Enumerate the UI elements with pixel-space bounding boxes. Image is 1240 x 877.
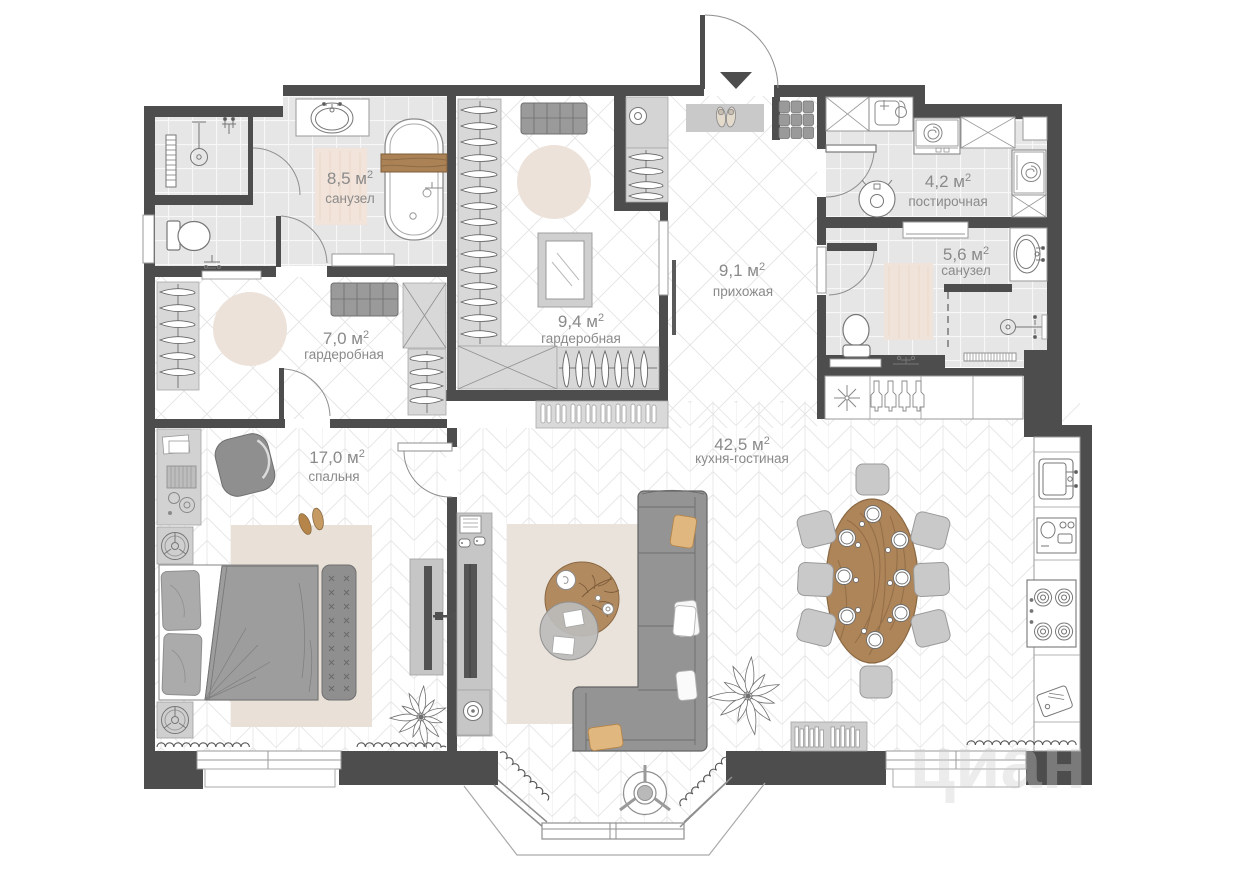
svg-text:санузел: санузел	[941, 263, 990, 278]
svg-text:5,6 м2: 5,6 м2	[943, 245, 989, 264]
svg-text:санузел: санузел	[325, 191, 374, 206]
svg-text:9,1 м2: 9,1 м2	[719, 261, 765, 280]
svg-text:8,5 м2: 8,5 м2	[327, 169, 373, 188]
svg-text:гардеробная: гардеробная	[304, 347, 384, 362]
svg-text:кухня-гостиная: кухня-гостиная	[695, 451, 789, 466]
svg-text:7,0 м2: 7,0 м2	[323, 329, 369, 348]
svg-text:гардеробная: гардеробная	[541, 331, 621, 346]
svg-text:прихожая: прихожая	[713, 284, 773, 299]
svg-text:9,4 м2: 9,4 м2	[558, 312, 604, 331]
svg-text:циан: циан	[910, 721, 1087, 804]
svg-text:спальня: спальня	[308, 469, 359, 484]
svg-text:17,0 м2: 17,0 м2	[309, 448, 365, 467]
svg-text:4,2 м2: 4,2 м2	[925, 172, 971, 191]
svg-text:постирочная: постирочная	[908, 194, 987, 209]
